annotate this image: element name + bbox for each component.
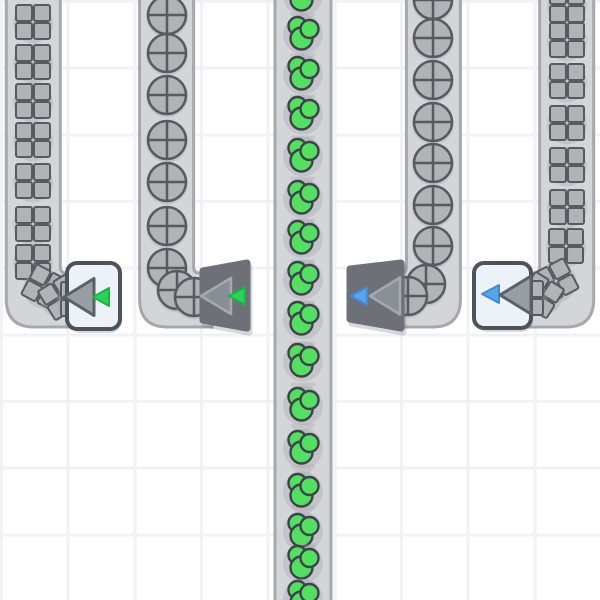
square-quadrant (568, 64, 584, 80)
item-circle[interactable] (412, 144, 454, 186)
item-circle[interactable] (146, 76, 188, 118)
item-square[interactable] (13, 44, 53, 84)
item-cluster[interactable] (283, 55, 323, 95)
collector-building-2[interactable] (201, 263, 249, 332)
cluster-berry (301, 347, 319, 365)
square-quadrant (568, 23, 584, 39)
item-cluster[interactable] (283, 179, 323, 219)
square-quadrant (567, 247, 583, 263)
item-circle[interactable] (412, 186, 454, 228)
cluster-berry (301, 224, 319, 242)
square-quadrant (550, 6, 566, 22)
square-quadrant (568, 166, 584, 182)
item-cluster[interactable] (283, 544, 323, 584)
square-quadrant (550, 82, 566, 98)
cluster-berry (301, 584, 319, 600)
square-quadrant (568, 41, 584, 57)
item-square[interactable] (13, 163, 53, 203)
square-quadrant (34, 63, 50, 79)
conveyor-belt-3-group (275, 0, 331, 600)
cluster-berry (301, 391, 319, 409)
cluster-berry (301, 265, 319, 283)
item-cluster[interactable] (283, 219, 323, 259)
square-quadrant (34, 5, 50, 21)
item-square[interactable] (13, 206, 53, 246)
square-quadrant (568, 148, 584, 164)
cluster-berry (301, 549, 319, 567)
collector-building-3[interactable] (350, 263, 403, 332)
square-quadrant (16, 45, 32, 61)
square-quadrant (34, 207, 50, 223)
square-quadrant (16, 141, 32, 157)
item-circle[interactable] (412, 103, 454, 145)
item-square[interactable] (547, 189, 587, 229)
item-cluster[interactable] (283, 260, 323, 300)
square-quadrant (568, 82, 584, 98)
square-quadrant (16, 23, 32, 39)
item-square[interactable] (13, 4, 53, 44)
square-quadrant (568, 0, 584, 4)
square-quadrant (568, 190, 584, 206)
square-quadrant (550, 0, 566, 4)
square-quadrant (16, 84, 32, 100)
cluster-berry (291, 0, 313, 11)
cluster-berry (301, 305, 319, 323)
item-circle[interactable] (146, 163, 188, 205)
square-quadrant (34, 164, 50, 180)
square-quadrant (568, 6, 584, 22)
square-quadrant (34, 123, 50, 139)
item-cluster[interactable] (283, 15, 323, 55)
square-quadrant (550, 106, 566, 122)
square-quadrant (34, 23, 50, 39)
square-quadrant (568, 124, 584, 140)
item-circle[interactable] (412, 61, 454, 103)
square-quadrant (550, 166, 566, 182)
item-cluster[interactable] (283, 300, 323, 340)
square-quadrant (34, 225, 50, 241)
item-circle[interactable] (146, 34, 188, 76)
game-viewport (0, 0, 600, 600)
square-quadrant (34, 245, 50, 261)
cluster-berry (301, 100, 319, 118)
square-quadrant (567, 229, 583, 245)
square-quadrant (16, 182, 32, 198)
square-quadrant (550, 208, 566, 224)
square-quadrant (16, 164, 32, 180)
square-quadrant (16, 102, 32, 118)
square-quadrant (550, 64, 566, 80)
square-quadrant (16, 123, 32, 139)
square-quadrant (34, 84, 50, 100)
item-cluster[interactable] (283, 95, 323, 135)
square-quadrant (34, 102, 50, 118)
collector-building-1[interactable] (64, 263, 122, 333)
cluster-berry (301, 434, 319, 452)
square-quadrant (568, 208, 584, 224)
square-quadrant (550, 148, 566, 164)
square-quadrant (16, 207, 32, 223)
item-circle[interactable] (146, 207, 188, 249)
item-circle[interactable] (146, 121, 188, 163)
collector-building-4[interactable] (474, 263, 533, 332)
square-quadrant (549, 229, 565, 245)
item-cluster[interactable] (283, 386, 323, 426)
item-circle[interactable] (412, 227, 454, 269)
item-cluster[interactable] (283, 137, 323, 177)
item-square[interactable] (13, 122, 53, 162)
square-quadrant (34, 141, 50, 157)
cluster-berry (301, 184, 319, 202)
square-quadrant (550, 23, 566, 39)
item-square[interactable] (13, 83, 53, 123)
item-square[interactable] (547, 22, 587, 62)
item-cluster[interactable] (283, 429, 323, 469)
cluster-berry (301, 517, 319, 535)
item-square[interactable] (547, 147, 587, 187)
item-cluster[interactable] (283, 342, 323, 382)
square-quadrant (568, 106, 584, 122)
item-square[interactable] (547, 105, 587, 145)
cluster-berry (301, 20, 319, 38)
square-quadrant (34, 45, 50, 61)
item-square[interactable] (547, 63, 587, 103)
cluster-berry (301, 60, 319, 78)
square-quadrant (550, 41, 566, 57)
square-quadrant (550, 124, 566, 140)
square-quadrant (16, 63, 32, 79)
square-quadrant (16, 225, 32, 241)
square-quadrant (16, 245, 32, 261)
item-circle[interactable] (412, 19, 454, 61)
square-quadrant (34, 182, 50, 198)
factory-scene (0, 0, 600, 600)
square-quadrant (550, 190, 566, 206)
cluster-berry (301, 142, 319, 160)
square-quadrant (16, 5, 32, 21)
cluster-berry (301, 477, 319, 495)
item-cluster[interactable] (283, 472, 323, 512)
